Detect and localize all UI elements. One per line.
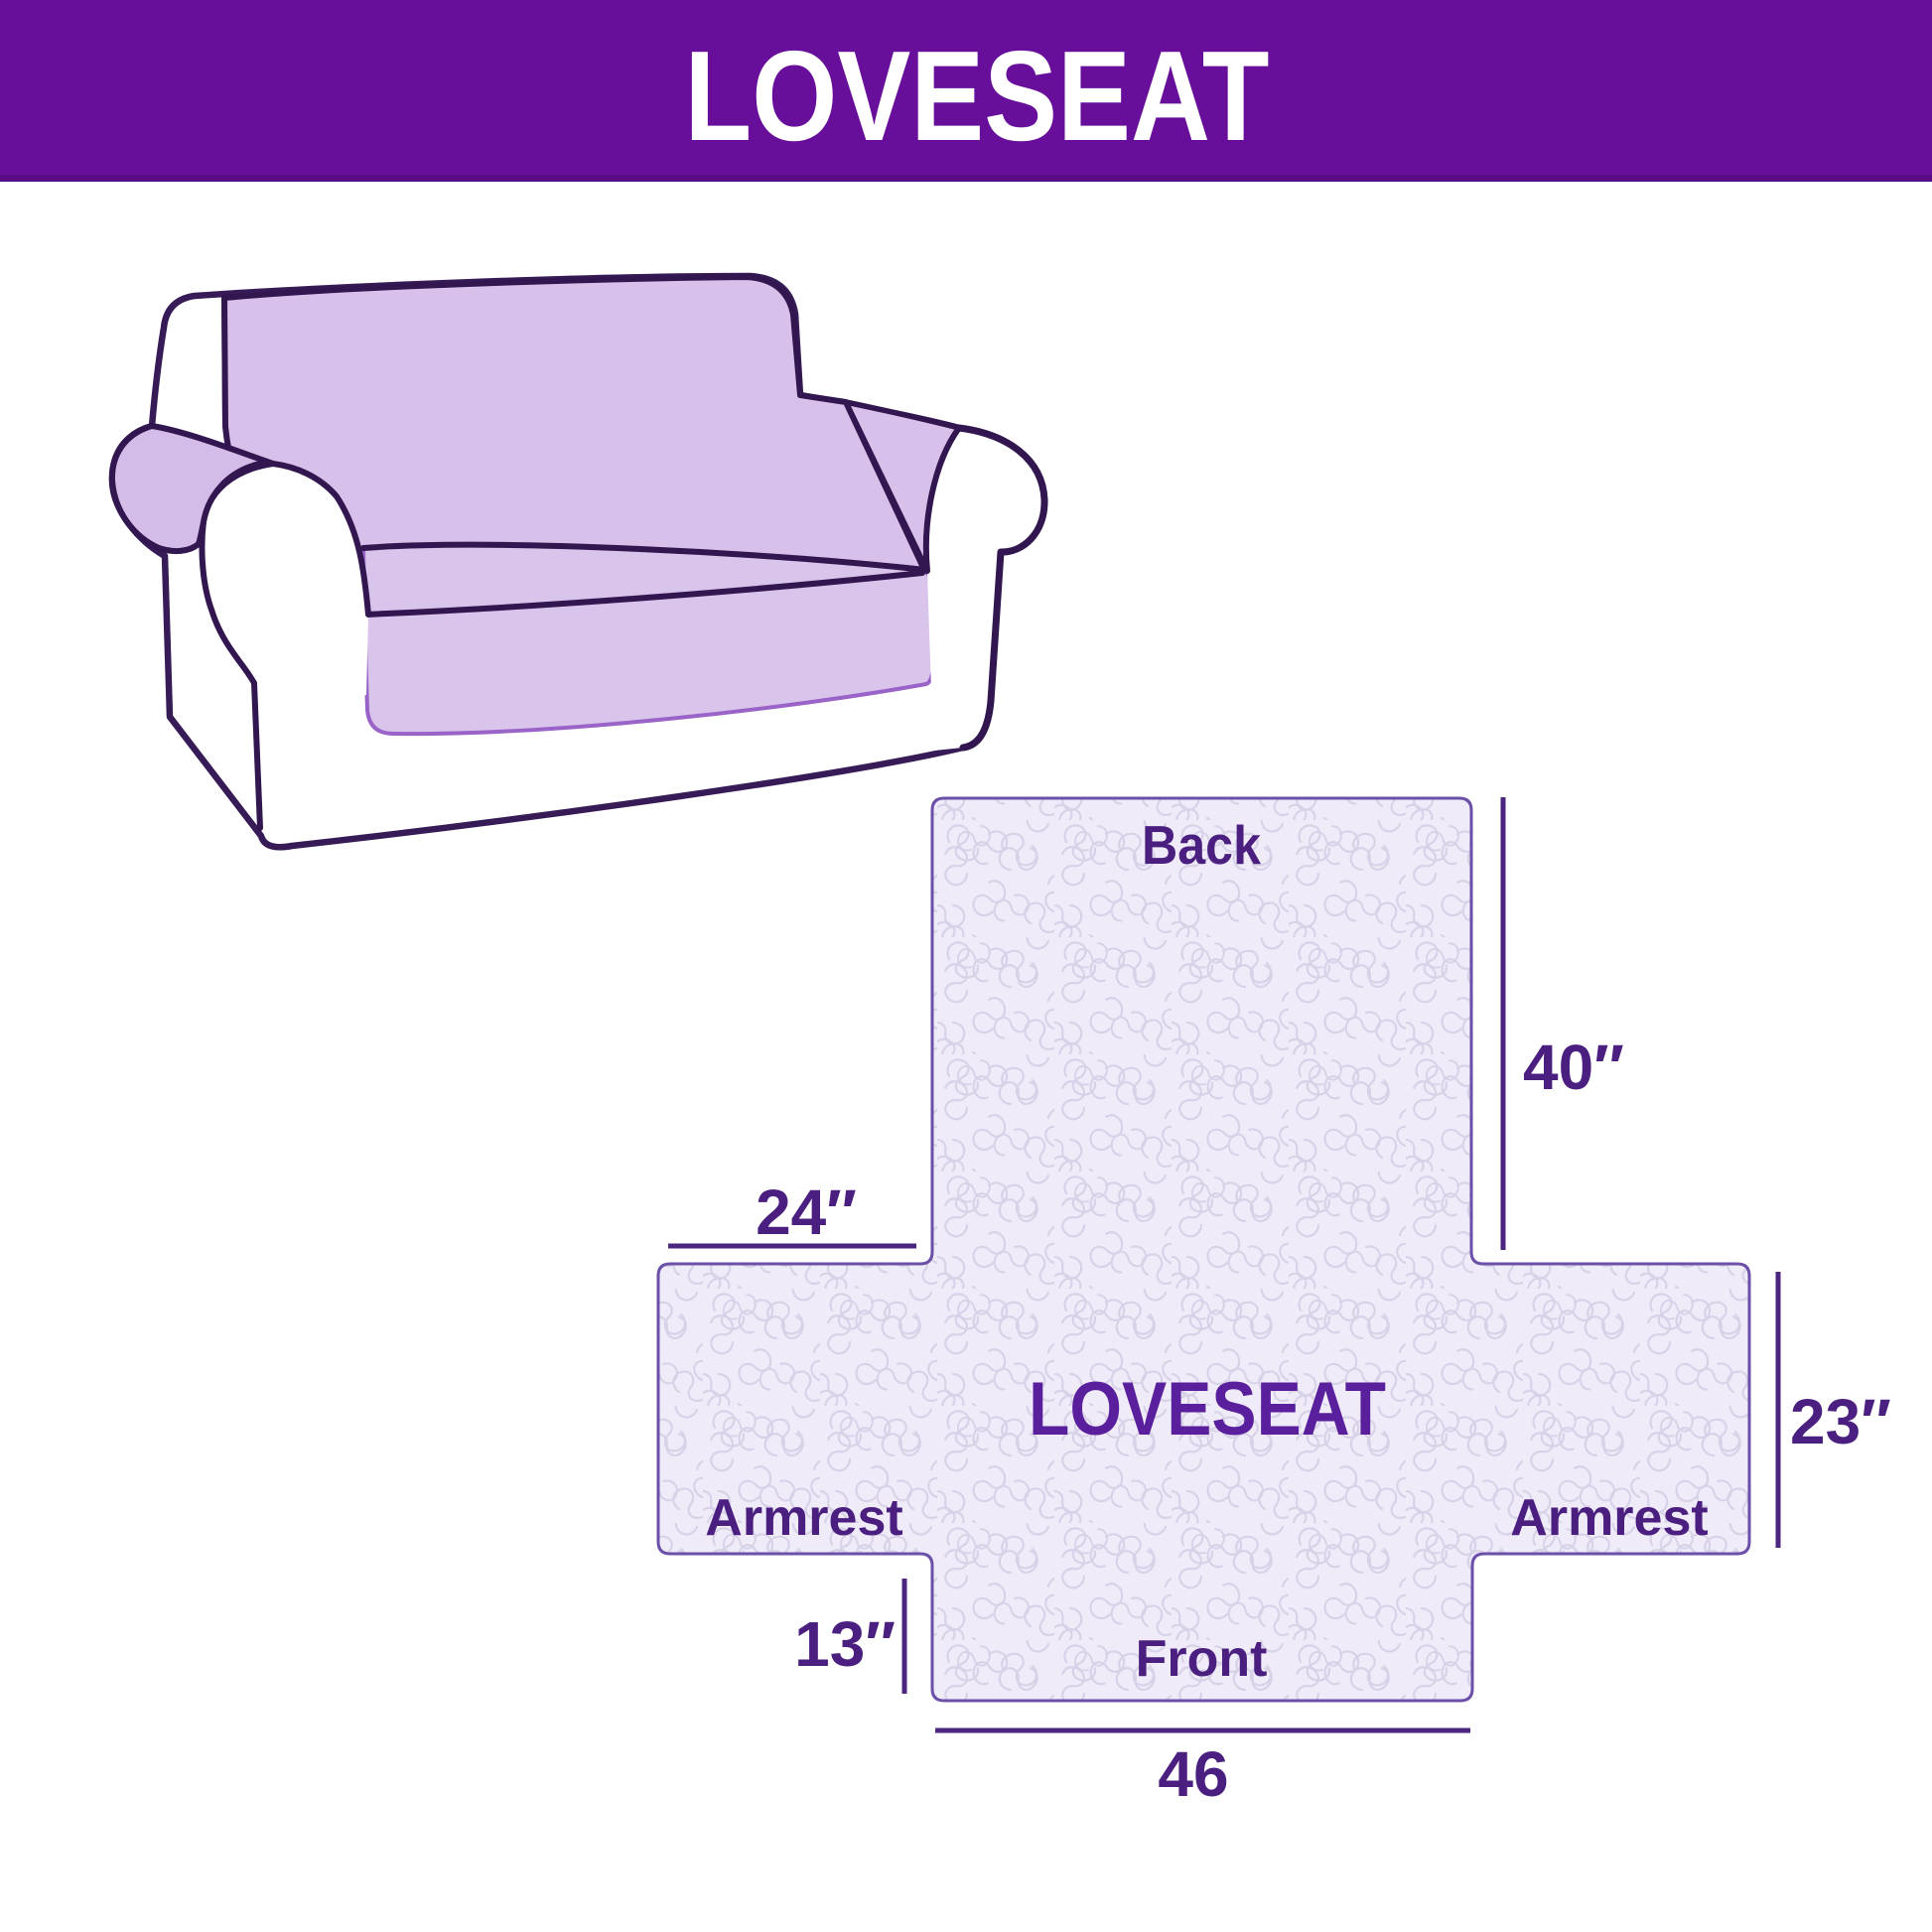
svg-text:LOVESEAT: LOVESEAT xyxy=(685,25,1270,168)
svg-text:46: 46 xyxy=(1158,1738,1228,1810)
svg-text:24″: 24″ xyxy=(756,1176,857,1248)
svg-text:LOVESEAT: LOVESEAT xyxy=(1029,1367,1386,1451)
svg-text:Back: Back xyxy=(1142,814,1261,876)
svg-text:Armrest: Armrest xyxy=(1510,1489,1708,1547)
svg-text:23″: 23″ xyxy=(1790,1386,1891,1457)
svg-text:13″: 13″ xyxy=(794,1608,896,1680)
svg-text:Armrest: Armrest xyxy=(705,1489,902,1547)
svg-text:40″: 40″ xyxy=(1523,1032,1624,1103)
svg-text:Front: Front xyxy=(1136,1630,1268,1688)
